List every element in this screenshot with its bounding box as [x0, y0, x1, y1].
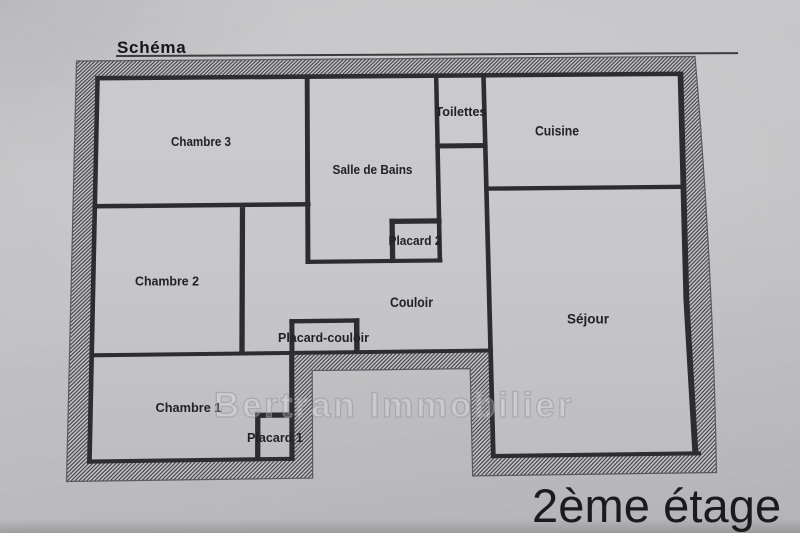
svg-text:Toilettes: Toilettes: [436, 104, 487, 119]
svg-text:Chambre 3: Chambre 3: [171, 134, 231, 149]
svg-text:Séjour: Séjour: [567, 311, 610, 326]
svg-text:Chambre 2: Chambre 2: [135, 273, 199, 288]
svg-text:Placard-couloir: Placard-couloir: [278, 330, 369, 345]
svg-text:Chambre 1: Chambre 1: [156, 400, 222, 415]
svg-text:Couloir: Couloir: [390, 295, 434, 310]
svg-text:Placard 1: Placard 1: [247, 430, 303, 445]
svg-text:Cuisine: Cuisine: [535, 123, 579, 138]
svg-text:Placard 2: Placard 2: [389, 233, 442, 248]
svg-text:Salle de Bains: Salle de Bains: [333, 162, 413, 177]
